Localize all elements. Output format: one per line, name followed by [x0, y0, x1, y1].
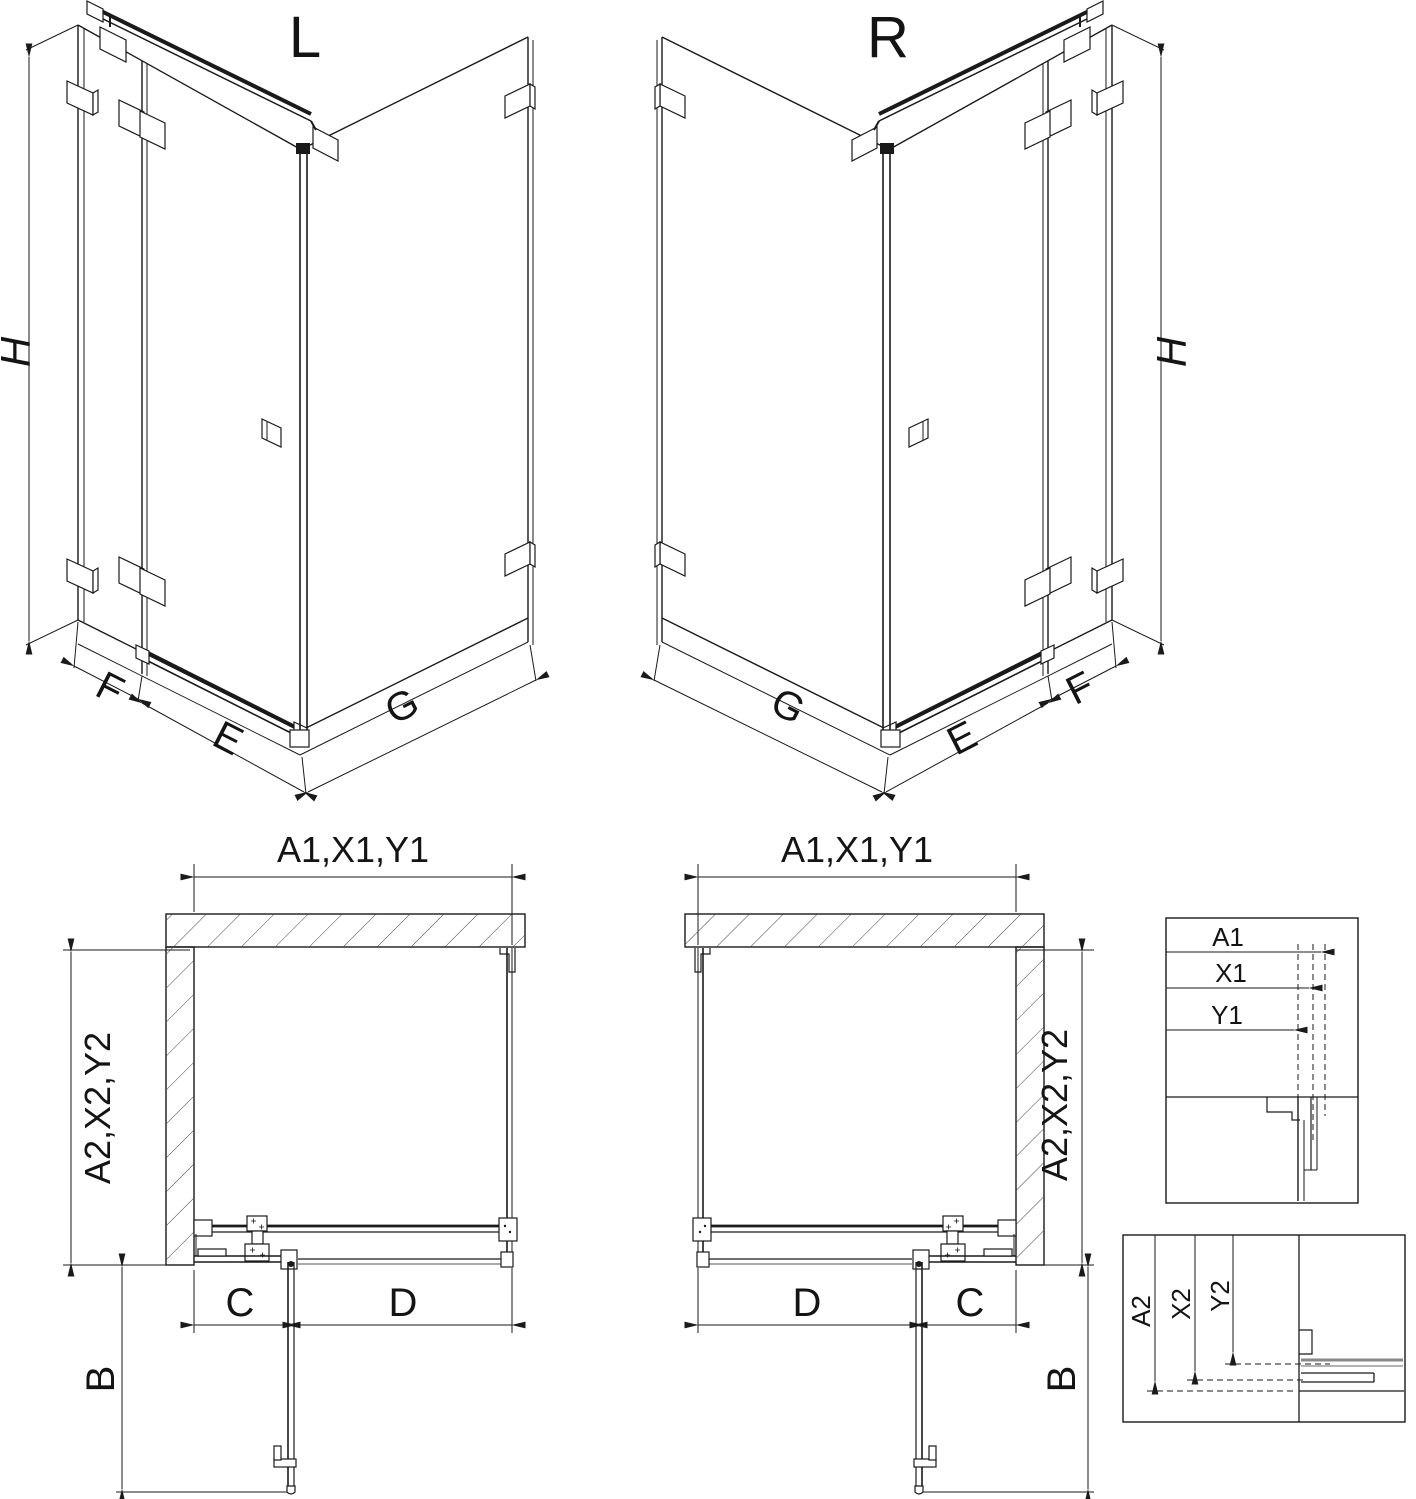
dim-label-g-left: G — [378, 680, 426, 733]
plan-right-dim-d: D — [793, 1281, 822, 1325]
wall-hatch-top-right-plan — [685, 914, 1044, 947]
iso-view-right: R H F E G — [654, 1, 1195, 794]
detail-label-x1: X1 — [1215, 958, 1247, 988]
plan-left-dim-c: C — [226, 1281, 255, 1325]
detail-label-x2: X2 — [1166, 1288, 1196, 1320]
dim-label-g-right: G — [764, 680, 812, 733]
wall-hatch-side-left-plan — [166, 947, 194, 1265]
detail-width-dims: A1 X1 Y1 — [1166, 918, 1358, 1203]
plan-right-dim-b: B — [1040, 1366, 1084, 1393]
dim-label-e-left: E — [206, 713, 250, 764]
dim-label-h-left: H — [0, 336, 39, 367]
plan-right-dim-c: C — [956, 1281, 985, 1325]
wall-hatch-top-left-plan — [166, 914, 525, 947]
detail-label-a1: A1 — [1212, 922, 1244, 952]
plan-view-left: A1,X1,Y1 A2,X2,Y2 C D B — [63, 829, 525, 1494]
plan-view-right: A1,X1,Y1 A2,X2,Y2 D C B — [685, 829, 1094, 1494]
dim-label-f-left: F — [89, 663, 131, 713]
shower-enclosure-technical-drawing: L H F E G R H F E G A1,X1,Y1 A2,X2,Y2 C … — [0, 0, 1416, 1499]
detail-label-a2: A2 — [1126, 1295, 1156, 1327]
plan-left-dim-side: A2,X2,Y2 — [77, 1032, 118, 1184]
plan-left-dim-top: A1,X1,Y1 — [277, 829, 429, 870]
detail-depth-dims: A2 X2 Y2 — [1123, 1235, 1405, 1422]
iso-right-geometry — [654, 1, 1164, 794]
detail-label-y2: Y2 — [1205, 1280, 1235, 1312]
dim-label-f-right: F — [1059, 663, 1101, 713]
dim-label-e-right: E — [940, 713, 984, 764]
plan-right-dim-top: A1,X1,Y1 — [781, 829, 933, 870]
plan-left-dim-d: D — [389, 1281, 418, 1325]
plan-right-dim-side: A2,X2,Y2 — [1034, 1029, 1075, 1181]
plan-left-dim-b: B — [79, 1366, 123, 1393]
view-label-right: R — [867, 5, 909, 70]
view-label-left: L — [289, 5, 321, 70]
iso-view-left: L H F E G — [0, 1, 536, 794]
dim-label-h-right: H — [1148, 336, 1195, 367]
detail-label-y1: Y1 — [1211, 1000, 1243, 1030]
